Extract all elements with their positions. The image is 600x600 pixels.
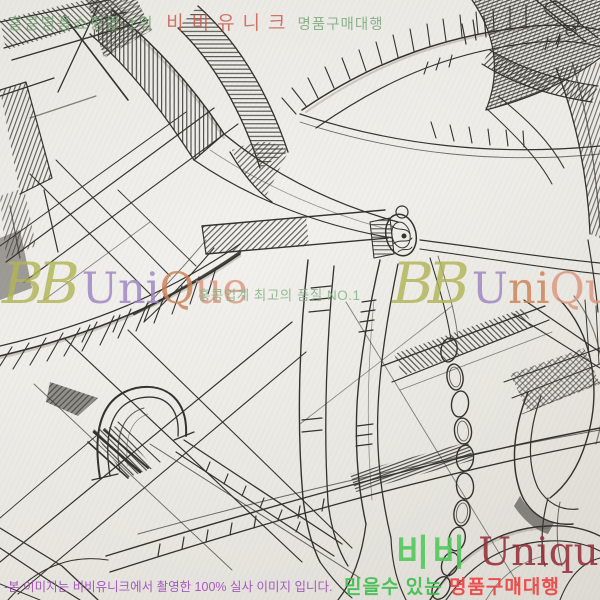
watermark-word: UniQue <box>472 268 600 311</box>
banner-service-text: 명품구매대행 <box>298 13 384 34</box>
logo-latin-text: Unique <box>478 533 600 572</box>
watermark-letters-purple: Uni <box>82 264 160 314</box>
disclaimer-text: -본 이미지는 비비유니크에서 촬영한 100% 실사 이미지 입니다. <box>4 576 332 595</box>
brand-logo: 비비 Unique <box>396 533 600 572</box>
brand-watermark-right: BB UniQue <box>392 256 600 313</box>
quality-tagline: 홍콩업계 최고의 품질 NO.1 <box>198 284 361 304</box>
product-photo: 홍콩명품쇼핑몰 1위 비비유니크 명품구매대행 BB UniQue 홍콩업계 최… <box>0 0 600 600</box>
watermark-letters-purple: U <box>472 264 508 314</box>
watermark-script-bb: BB <box>392 256 472 313</box>
banner-rank-text: 홍콩명품쇼핑몰 1위 <box>8 10 154 34</box>
slogan-lead-text: 믿을수 있는 <box>344 577 443 598</box>
logo-korean-text: 비비 <box>396 535 468 571</box>
watermark-letters-orange: Q <box>159 264 194 314</box>
watermark-letters-orange: ni <box>508 264 549 314</box>
slogan: 믿을수 있는 명품구매대행 <box>344 572 560 599</box>
slogan-tail-text: 명품구매대행 <box>443 577 560 598</box>
watermark-script-bb: BB <box>2 256 82 313</box>
watermark-letters-salmon: Que <box>549 264 600 314</box>
banner-brand-text: 비비유니크 <box>166 8 293 35</box>
top-banner: 홍콩명품쇼핑몰 1위 비비유니크 명품구매대행 <box>8 8 384 35</box>
